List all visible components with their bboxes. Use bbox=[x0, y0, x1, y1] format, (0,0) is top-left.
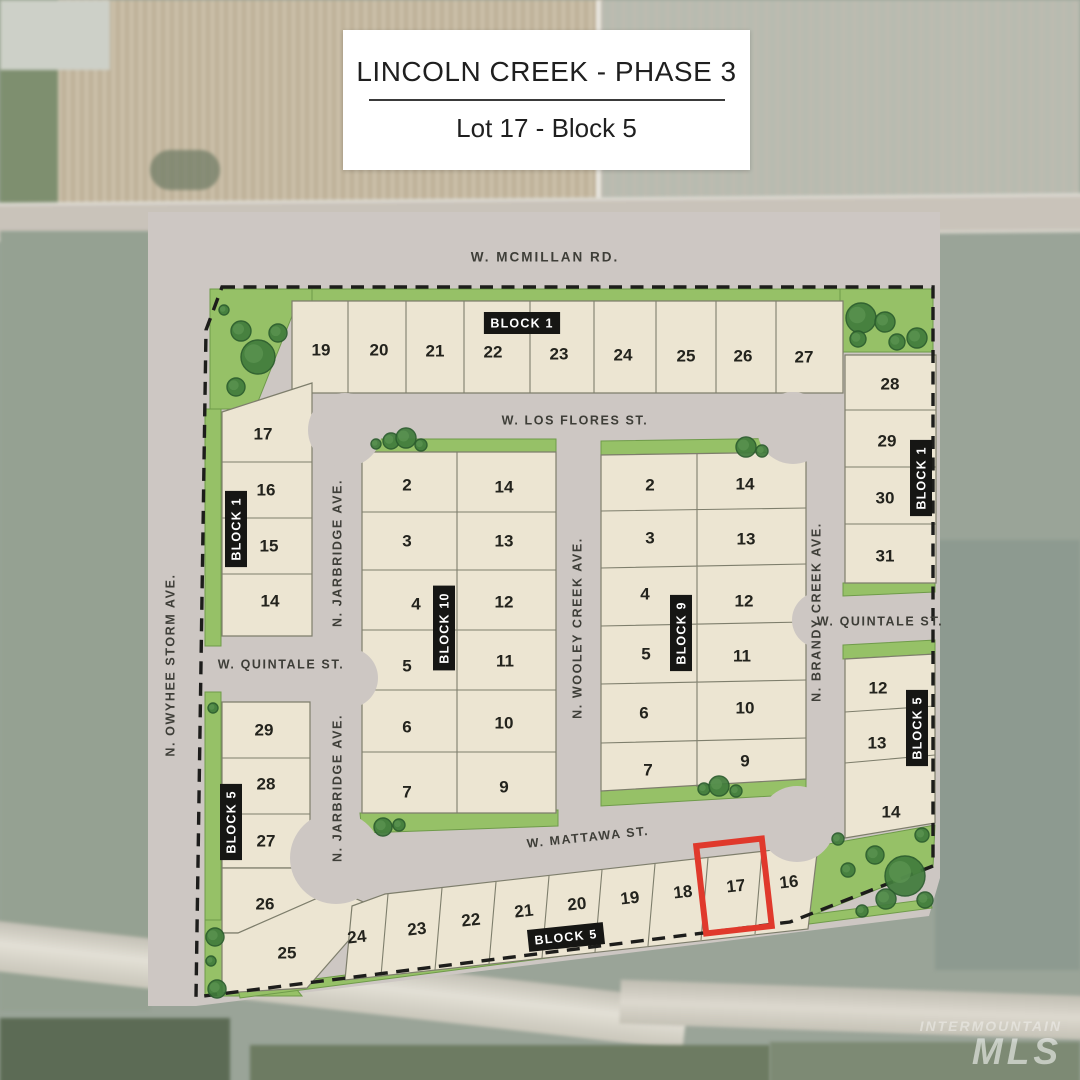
tree-icon bbox=[850, 331, 866, 347]
lot-number-label: 12 bbox=[735, 591, 754, 610]
lot-number-label: 6 bbox=[639, 703, 648, 722]
lot-number-label: 27 bbox=[257, 831, 276, 850]
lot-number-label: 11 bbox=[733, 646, 751, 665]
lot-number-label: 9 bbox=[740, 751, 749, 770]
lot-number-label: 4 bbox=[640, 584, 650, 603]
lot-number-label: 13 bbox=[495, 531, 514, 550]
green-area bbox=[205, 692, 221, 920]
lot-number-label: 28 bbox=[881, 374, 900, 393]
lot-number-label: 23 bbox=[406, 919, 427, 940]
tree-icon bbox=[371, 439, 381, 449]
lot-number-label: 9 bbox=[499, 777, 508, 796]
block-tag: BLOCK 1 bbox=[225, 491, 247, 567]
lot-number-label: 20 bbox=[370, 340, 389, 359]
svg-text:BLOCK 1: BLOCK 1 bbox=[490, 316, 553, 330]
lot-number-label: 23 bbox=[550, 344, 569, 363]
lot-number-label: 17 bbox=[725, 876, 746, 897]
lot-number-label: 25 bbox=[278, 943, 297, 962]
lot-number-label: 18 bbox=[672, 882, 693, 903]
lot-number-label: 29 bbox=[255, 720, 274, 739]
plat-flyer: W. MCMILLAN RD.W. LOS FLORES ST.W. QUINT… bbox=[0, 0, 1080, 1080]
svg-text:BLOCK 5: BLOCK 5 bbox=[224, 790, 238, 853]
tree-icon bbox=[206, 956, 216, 966]
road-knuckle bbox=[759, 786, 835, 862]
lot-number-label: 13 bbox=[737, 529, 756, 548]
street-label-wooley-creek: N. WOOLEY CREEK AVE. bbox=[570, 537, 584, 719]
lot-number-label: 14 bbox=[495, 477, 514, 496]
lot-number-label: 29 bbox=[878, 431, 897, 450]
lot-number-label: 26 bbox=[734, 346, 753, 365]
tree-icon bbox=[841, 863, 855, 877]
tree-icon bbox=[227, 378, 245, 396]
tree-icon bbox=[917, 892, 933, 908]
tree-icon bbox=[915, 828, 929, 842]
lot-number-label: 11 bbox=[496, 651, 514, 670]
lot-number-label: 3 bbox=[645, 528, 654, 547]
lot-number-label: 19 bbox=[619, 888, 640, 909]
tree-icon bbox=[889, 334, 905, 350]
street-label-quintale-west: W. QUINTALE ST. bbox=[218, 657, 345, 671]
title-divider bbox=[369, 99, 725, 101]
tree-icon bbox=[730, 785, 742, 797]
street-label-owyhee-storm: N. OWYHEE STORM AVE. bbox=[163, 573, 177, 756]
tree-icon bbox=[231, 321, 251, 341]
lot-number-label: 12 bbox=[869, 678, 888, 697]
lot-number-label: 21 bbox=[426, 341, 445, 360]
lot-number-label: 4 bbox=[411, 594, 421, 613]
lot-number-label: 20 bbox=[566, 894, 587, 915]
tree-icon bbox=[241, 340, 275, 374]
lot-number-label: 22 bbox=[460, 910, 481, 931]
lot-number-label: 10 bbox=[495, 713, 514, 732]
svg-text:BLOCK 10: BLOCK 10 bbox=[437, 592, 451, 663]
lot-number-label: 16 bbox=[778, 872, 799, 893]
lot-number-label: 7 bbox=[643, 760, 652, 779]
tree-icon bbox=[208, 703, 218, 713]
lot-number-label: 15 bbox=[260, 536, 279, 555]
tree-icon bbox=[709, 776, 729, 796]
title-card: LINCOLN CREEK - PHASE 3 Lot 17 - Block 5 bbox=[343, 30, 750, 170]
flyer-title: LINCOLN CREEK - PHASE 3 bbox=[356, 56, 736, 88]
tree-icon bbox=[393, 819, 405, 831]
lot-number-label: 2 bbox=[645, 475, 654, 494]
lot-number-label: 30 bbox=[876, 488, 895, 507]
green-area bbox=[205, 409, 221, 646]
lot-number-label: 25 bbox=[677, 346, 696, 365]
lot-number-label: 16 bbox=[257, 480, 276, 499]
tree-icon bbox=[736, 437, 756, 457]
block-tag: BLOCK 5 bbox=[906, 690, 928, 766]
tree-icon bbox=[876, 889, 896, 909]
tree-icon bbox=[866, 846, 884, 864]
lot-number-label: 19 bbox=[312, 340, 331, 359]
street-label-mcmillan: W. MCMILLAN RD. bbox=[471, 250, 619, 265]
tree-icon bbox=[846, 303, 876, 333]
lot-number-label: 24 bbox=[614, 345, 633, 364]
tree-icon bbox=[415, 439, 427, 451]
block-tag: BLOCK 1 bbox=[484, 312, 560, 334]
street-label-jarbridge-north: N. JARBRIDGE AVE. bbox=[330, 479, 344, 627]
tree-icon bbox=[832, 833, 844, 845]
lot-number-label: 12 bbox=[495, 592, 514, 611]
lot-number-label: 17 bbox=[254, 424, 273, 443]
svg-text:BLOCK 9: BLOCK 9 bbox=[674, 601, 688, 664]
lot-number-label: 10 bbox=[736, 698, 755, 717]
lot-number-label: 13 bbox=[868, 733, 887, 752]
flyer-subtitle: Lot 17 - Block 5 bbox=[456, 113, 637, 144]
lot-number-label: 31 bbox=[876, 546, 895, 565]
svg-text:BLOCK 5: BLOCK 5 bbox=[910, 696, 924, 759]
tree-icon bbox=[756, 445, 768, 457]
svg-text:BLOCK 1: BLOCK 1 bbox=[229, 497, 243, 560]
lot-number-label: 21 bbox=[513, 901, 534, 922]
lot-number-label: 22 bbox=[484, 342, 503, 361]
lot-number-label: 3 bbox=[402, 531, 411, 550]
tree-icon bbox=[907, 328, 927, 348]
tree-icon bbox=[875, 312, 895, 332]
street-label-quintale-east: W. QUINTALE ST. bbox=[817, 614, 944, 628]
lot-number-label: 5 bbox=[641, 644, 650, 663]
lot-number-label: 14 bbox=[882, 802, 901, 821]
tree-icon bbox=[698, 783, 710, 795]
street-label-brandy-creek: N. BRANDY CREEK AVE. bbox=[809, 522, 823, 702]
road-knuckle bbox=[308, 393, 382, 467]
tree-icon bbox=[269, 324, 287, 342]
tree-icon bbox=[856, 905, 868, 917]
lot-number-label: 7 bbox=[402, 782, 411, 801]
street-label-los-flores: W. LOS FLORES ST. bbox=[502, 413, 649, 427]
lot-number-label: 14 bbox=[736, 474, 755, 493]
tree-icon bbox=[374, 818, 392, 836]
block-tag: BLOCK 9 bbox=[670, 595, 692, 671]
lot-number-label: 5 bbox=[402, 656, 411, 675]
lot-number-label: 28 bbox=[257, 774, 276, 793]
svg-text:BLOCK 1: BLOCK 1 bbox=[914, 446, 928, 509]
lot-number-label: 27 bbox=[795, 347, 814, 366]
lot-number-label: 2 bbox=[402, 475, 411, 494]
tree-icon bbox=[206, 928, 224, 946]
tree-icon bbox=[208, 980, 226, 998]
block-tag: BLOCK 5 bbox=[220, 784, 242, 860]
lot-number-label: 26 bbox=[256, 894, 275, 913]
lot-number-label: 14 bbox=[261, 591, 280, 610]
block-tag: BLOCK 10 bbox=[433, 586, 455, 671]
tree-icon bbox=[396, 428, 416, 448]
lot-number-label: 6 bbox=[402, 717, 411, 736]
lot-number-label: 24 bbox=[346, 926, 367, 947]
block-tag: BLOCK 1 bbox=[910, 440, 932, 516]
tree-icon bbox=[219, 305, 229, 315]
street-label-jarbridge-south: N. JARBRIDGE AVE. bbox=[330, 714, 344, 862]
block-10-lots bbox=[362, 452, 556, 813]
